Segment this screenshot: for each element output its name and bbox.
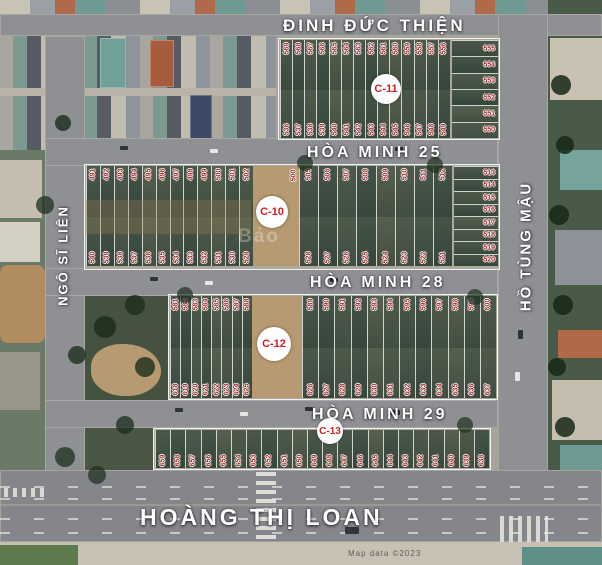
plot: 597	[431, 296, 447, 348]
lane-dashes	[0, 498, 602, 500]
plot-number: 566	[319, 43, 326, 55]
plot-number: 627	[323, 384, 330, 396]
plot: 641	[428, 430, 443, 468]
plot-number: 633	[420, 384, 427, 396]
red-roof	[150, 40, 174, 87]
block-c10-bottom-right: 528527526525524523522521	[299, 217, 452, 266]
plot-number: 527	[325, 252, 332, 264]
plot-number: 590	[323, 299, 330, 311]
plot: 632	[399, 348, 415, 398]
plot-number: 500	[215, 169, 222, 181]
plot-number: 644	[387, 455, 394, 467]
plot-number: 636	[469, 384, 476, 396]
plot-number: 537	[132, 252, 139, 264]
car	[210, 149, 218, 153]
plot-number: 587	[234, 299, 241, 311]
building	[550, 38, 602, 100]
lane-dashes	[0, 486, 602, 488]
plot: 625	[242, 348, 252, 398]
plot: 588	[242, 296, 252, 348]
plot: 528	[299, 217, 318, 266]
plot-number: 567	[307, 43, 314, 55]
plot-number: 556	[441, 43, 448, 55]
building	[0, 352, 40, 410]
plot: 539	[316, 90, 328, 138]
plot: 638	[474, 430, 489, 468]
plot-number: 541	[344, 124, 351, 136]
plot: 532	[197, 217, 211, 266]
plot-number: 560	[392, 43, 399, 55]
plot-number: 558	[417, 43, 424, 55]
plot: 634	[431, 348, 447, 398]
plot-number: 629	[356, 384, 363, 396]
plot-number: 521	[439, 252, 446, 264]
car	[120, 146, 128, 150]
plot: 496	[156, 166, 170, 217]
plot-number: 494	[132, 169, 139, 181]
plot-number: 492	[104, 169, 111, 181]
street-label-hoang-thi-loan: HOÀNG THỊ LOAN	[140, 504, 383, 531]
plot-number: 583	[193, 299, 200, 311]
plot-number: 554	[483, 61, 495, 68]
plot: 567	[304, 40, 316, 90]
plot: 540	[86, 217, 100, 266]
plot: 650	[292, 430, 307, 468]
plot: 515	[454, 191, 498, 204]
grass	[0, 545, 78, 565]
plot-number: 510	[401, 169, 408, 181]
plot-number: 561	[380, 43, 387, 55]
dirt-patch	[0, 265, 45, 343]
car	[518, 330, 523, 339]
plot: 630	[367, 348, 383, 398]
plot-number: 531	[215, 252, 222, 264]
plot: 600	[480, 296, 496, 348]
plot: 500	[211, 166, 225, 217]
block-c11-top-row: 5695685675665655645635625615605595585575…	[280, 40, 450, 90]
plot-number: 506	[325, 169, 332, 181]
plot: 519	[454, 241, 498, 254]
building	[560, 150, 602, 190]
plot: 494	[128, 166, 142, 217]
plot-number: 515	[483, 194, 495, 201]
plot-number: 620	[193, 384, 200, 396]
plot: 551	[452, 105, 498, 121]
car	[515, 372, 520, 381]
plot-number: 593	[372, 299, 379, 311]
plot-number: 557	[429, 43, 436, 55]
plot-number: 501	[229, 169, 236, 181]
plot-number: 624	[234, 384, 241, 396]
plot-number: 491	[90, 169, 97, 181]
plot-number: 550	[483, 127, 495, 134]
plot: 627	[318, 348, 334, 398]
teal-roof	[100, 38, 126, 88]
plot: 654	[231, 430, 246, 468]
plot-number: 498	[187, 169, 194, 181]
plot-number: 544	[380, 124, 387, 136]
plot: 502	[239, 166, 253, 217]
plot: 538	[304, 90, 316, 138]
plot-number: 645	[372, 455, 379, 467]
plot-number: 622	[213, 384, 220, 396]
plot: 539	[100, 217, 114, 266]
plot: 522	[414, 217, 433, 266]
plot: 642	[413, 430, 428, 468]
crosswalk	[500, 516, 548, 542]
street-label-hoa-minh-25: HÒA MINH 25	[307, 144, 443, 162]
plot: 542	[353, 90, 365, 138]
plot: 633	[415, 348, 431, 398]
car	[205, 281, 213, 285]
plot-number: 563	[356, 43, 363, 55]
plot-number: 562	[368, 43, 375, 55]
block-c12-top-left: 581582583584585586587588	[170, 296, 252, 348]
plot: 527	[318, 217, 337, 266]
plot: 520	[454, 254, 498, 267]
plot-number: 528	[306, 252, 313, 264]
plot-number: 651	[281, 455, 288, 467]
plot: 564	[341, 40, 353, 90]
plot: 589	[302, 296, 318, 348]
street-label-ngo-si-lien: NGÔ SĨ LIÊN	[56, 186, 71, 326]
plot-number: 598	[453, 299, 460, 311]
plot-number: 600	[485, 299, 492, 311]
plot-number: 641	[433, 455, 440, 467]
plot-number: 496	[160, 169, 167, 181]
plot-number: 642	[418, 455, 425, 467]
watermark: Bảo	[238, 226, 280, 248]
car	[240, 412, 248, 416]
plot: 536	[280, 90, 292, 138]
block-c10-top-left: 491492493494495496497498499500501502	[86, 166, 253, 217]
plot: 652	[261, 430, 276, 468]
plot-number: 586	[223, 299, 230, 311]
plot: 523	[395, 217, 414, 266]
plot-number: 507	[344, 169, 351, 181]
plot: 658	[170, 430, 185, 468]
plot: 586	[221, 296, 231, 348]
plot-number: 647	[342, 455, 349, 467]
plot-number: 537	[295, 124, 302, 136]
street-label-ho-tung-mau: HỒ TÙNG MẬU	[518, 167, 535, 327]
plot-number: 493	[118, 169, 125, 181]
plot-number: 585	[213, 299, 220, 311]
plot-number: 505	[306, 169, 313, 181]
building	[558, 330, 602, 358]
plot: 596	[415, 296, 431, 348]
building	[0, 160, 42, 218]
plot-number: 518	[483, 232, 495, 239]
plot-number: 540	[90, 252, 97, 264]
plot: 547	[414, 90, 426, 138]
plot-number: 495	[146, 169, 153, 181]
plot: 595	[399, 296, 415, 348]
block-c12-bottom-right: 626627628629630631632633634635636637	[302, 348, 496, 398]
block-badge-c11: C-11	[371, 74, 401, 104]
plot-number: 653	[251, 455, 258, 467]
plot-number: 621	[203, 384, 210, 396]
block-c10-bottom-left: 540539538537536535534533532531530529	[86, 217, 253, 266]
plot-number: 536	[146, 252, 153, 264]
plot-number: 638	[479, 455, 486, 467]
rooftops-strip-top	[0, 0, 602, 14]
plot-number: 597	[436, 299, 443, 311]
plot: 525	[356, 217, 375, 266]
plot-number: 654	[236, 455, 243, 467]
plot-number: 656	[205, 455, 212, 467]
plot-number: 626	[307, 384, 314, 396]
plot: 546	[401, 90, 413, 138]
sidewalk	[0, 542, 602, 565]
plot-number: 632	[404, 384, 411, 396]
plot-number: 581	[172, 299, 179, 311]
plot: 635	[448, 348, 464, 398]
plot: 565	[329, 40, 341, 90]
plot-number: 543	[368, 124, 375, 136]
plot-number: 538	[307, 124, 314, 136]
plot-number: 548	[429, 124, 436, 136]
plot-number: 657	[190, 455, 197, 467]
plot: 534	[170, 217, 184, 266]
plot-number: 551	[483, 110, 495, 117]
plot-number: 535	[160, 252, 167, 264]
plot: 569	[280, 40, 292, 90]
plot-number: 628	[339, 384, 346, 396]
plot-number: 553	[483, 78, 495, 85]
building	[552, 380, 602, 440]
plot-number: 524	[382, 252, 389, 264]
plot: 628	[334, 348, 350, 398]
building	[522, 547, 602, 565]
plot: 585	[211, 296, 221, 348]
plot: 533	[183, 217, 197, 266]
plot-number: 530	[229, 252, 236, 264]
plot: 553	[452, 73, 498, 89]
plot: 507	[337, 166, 356, 217]
plot: 513	[454, 166, 498, 179]
plot-number: 546	[404, 124, 411, 136]
plot: 618	[170, 348, 180, 398]
plot: 659	[155, 430, 170, 468]
plot: 563	[353, 40, 365, 90]
plot: 629	[351, 348, 367, 398]
plot-number: 640	[448, 455, 455, 467]
vacant-land	[85, 296, 168, 400]
plot: 491	[86, 166, 100, 217]
plot: 636	[464, 348, 480, 398]
plot: 492	[100, 166, 114, 217]
plot: 538	[114, 217, 128, 266]
block-badge-c10: C-10	[256, 196, 288, 228]
plot: 587	[232, 296, 242, 348]
plot-number: 525	[363, 252, 370, 264]
plot-number: 549	[441, 124, 448, 136]
plot-number: 497	[173, 169, 180, 181]
plot: 497	[170, 166, 184, 217]
plot-number: 513	[483, 169, 495, 176]
plot: 508	[356, 166, 375, 217]
plot-number: 592	[356, 299, 363, 311]
plot-number: 545	[392, 124, 399, 136]
plot-number: 652	[266, 455, 273, 467]
plot: 493	[114, 166, 128, 217]
plot: 599	[464, 296, 480, 348]
plot-number: 552	[483, 94, 495, 101]
plot: 549	[438, 90, 450, 138]
plot-number: 511	[420, 169, 427, 180]
plot-number: 500	[290, 170, 297, 182]
plot: 518	[454, 229, 498, 242]
street-label-dinh-duc-thien: ĐINH ĐỨC THIỆN	[283, 16, 466, 36]
plot: 521	[433, 217, 452, 266]
plot-number: 619	[182, 384, 189, 396]
plot-number: 538	[118, 252, 125, 264]
plot: 499	[197, 166, 211, 217]
plot-number: 588	[244, 299, 251, 311]
plot: 582	[180, 296, 190, 348]
plot-number: 584	[203, 299, 210, 311]
block-c12-top-right: 589590591592593594595596597598599600	[302, 296, 496, 348]
tree-cluster	[0, 0, 10, 10]
plot-number: 659	[160, 455, 167, 467]
plot: 651	[277, 430, 292, 468]
plot-number: 569	[283, 43, 290, 55]
plot-number: 568	[295, 43, 302, 55]
plot: 593	[367, 296, 383, 348]
plot-number: 508	[363, 169, 370, 181]
plot: 524	[376, 217, 395, 266]
plot-number: 540	[332, 124, 339, 136]
plot-number: 519	[483, 244, 495, 251]
plot-number: 532	[201, 252, 208, 264]
plot: 622	[211, 348, 221, 398]
block-badge-c13: C-13	[317, 418, 343, 444]
plot: 623	[221, 348, 231, 398]
plot-number: 533	[187, 252, 194, 264]
plot: 509	[376, 166, 395, 217]
plot-number: 516	[483, 207, 495, 214]
plot: 639	[459, 430, 474, 468]
plot: 495	[142, 166, 156, 217]
crosswalk	[4, 488, 44, 497]
plot: 583	[191, 296, 201, 348]
block-c11-bottom-row: 5365375385395405415425435445455465475485…	[280, 90, 450, 138]
plot-number: 539	[104, 252, 111, 264]
plot-number: 623	[223, 384, 230, 396]
plot: 566	[316, 40, 328, 90]
plot-number: 637	[485, 384, 492, 396]
plot-number: 658	[175, 455, 182, 467]
plot-number: 523	[401, 252, 408, 264]
plot-number: 639	[463, 455, 470, 467]
plot: 501	[225, 166, 239, 217]
plot-number: 582	[182, 299, 189, 311]
plot: 511	[414, 166, 433, 217]
plot-number: 648	[327, 455, 334, 467]
plot: 626	[302, 348, 318, 398]
plot-number: 594	[388, 299, 395, 311]
plot: 505	[299, 166, 318, 217]
plot-number: 547	[417, 124, 424, 136]
block-c11-stack: 555554553552551550	[452, 40, 498, 138]
plot: 631	[383, 348, 399, 398]
plot: 657	[185, 430, 200, 468]
plot-number: 643	[403, 455, 410, 467]
car	[150, 277, 158, 281]
building	[555, 230, 602, 285]
plot: 640	[444, 430, 459, 468]
street-label-hoa-minh-28: HÒA MINH 28	[310, 274, 446, 292]
plot-number: 512	[439, 169, 446, 181]
plot: 590	[318, 296, 334, 348]
plot: 643	[398, 430, 413, 468]
plot: 557	[426, 40, 438, 90]
rooftops-block-topleft	[0, 36, 276, 150]
plot: 656	[201, 430, 216, 468]
plot-number: 591	[339, 299, 346, 311]
plot: 537	[128, 217, 142, 266]
plot: 624	[232, 348, 242, 398]
plot-number: 526	[344, 252, 351, 264]
plot-number: 539	[319, 124, 326, 136]
plot-number: 564	[344, 43, 351, 55]
plot: 559	[401, 40, 413, 90]
plot: 517	[454, 216, 498, 229]
plot-number: 631	[388, 384, 395, 396]
plot: 556	[438, 40, 450, 90]
plot-number: 534	[173, 252, 180, 264]
building	[0, 222, 40, 262]
plot: 516	[454, 204, 498, 217]
plot-number: 630	[372, 384, 379, 396]
plot: 526	[337, 217, 356, 266]
plot: 536	[142, 217, 156, 266]
plot-number: 655	[220, 455, 227, 467]
plot-number: 529	[243, 252, 250, 264]
plot: 531	[211, 217, 225, 266]
plot-number: 596	[420, 299, 427, 311]
plot-number: 509	[382, 169, 389, 181]
plot-number: 625	[244, 384, 251, 396]
block-c10-stack: 513514515516517518519520	[454, 166, 498, 266]
plot: 619	[180, 348, 190, 398]
plot-number: 517	[483, 219, 495, 226]
plot-number: 520	[483, 257, 495, 264]
plot-number: 595	[404, 299, 411, 311]
block-c12-bottom-left: 618619620621622623624625	[170, 348, 252, 398]
plot-number: 542	[356, 124, 363, 136]
plot: 644	[383, 430, 398, 468]
plot-number: 565	[332, 43, 339, 55]
plot: 594	[383, 296, 399, 348]
plot: 506	[318, 166, 337, 217]
plot: 550	[452, 122, 498, 138]
plot: 653	[246, 430, 261, 468]
plot: 537	[292, 90, 304, 138]
satellite-map[interactable]: 5695685675665655645635625615605595585575…	[0, 0, 602, 565]
plot: 555	[452, 40, 498, 56]
plot-number: 649	[311, 455, 318, 467]
plot-number: 499	[201, 169, 208, 181]
plot: 584	[201, 296, 211, 348]
plot-number: 559	[404, 43, 411, 55]
plot: 598	[448, 296, 464, 348]
car	[175, 408, 183, 412]
plot-number: 646	[357, 455, 364, 467]
plot: 645	[368, 430, 383, 468]
plot: 541	[341, 90, 353, 138]
